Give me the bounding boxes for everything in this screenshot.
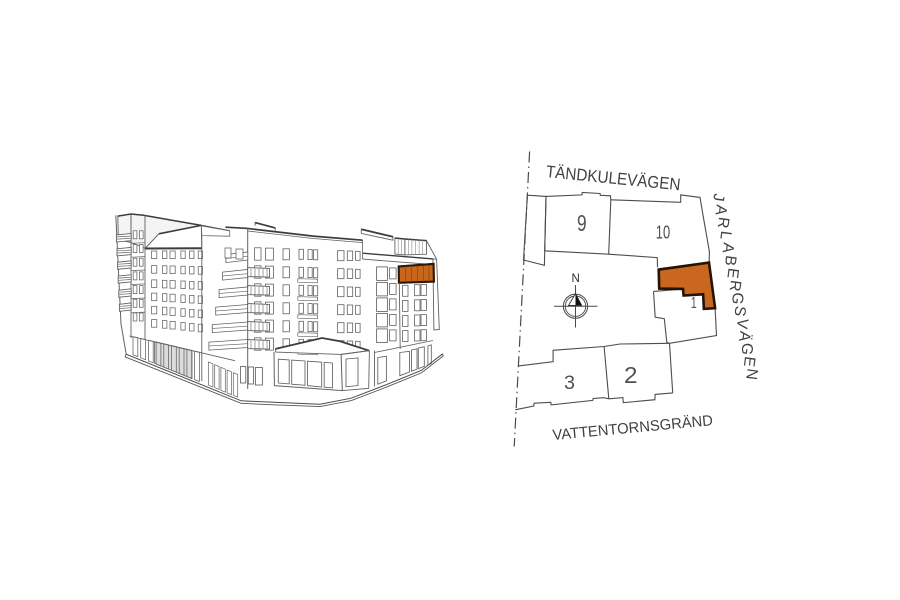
svg-text:S: S <box>730 305 748 317</box>
svg-text:R: R <box>726 279 744 292</box>
svg-text:E: E <box>723 267 741 279</box>
svg-text:R: R <box>714 216 732 229</box>
svg-text:G: G <box>728 291 746 305</box>
svg-text:10: 10 <box>656 221 670 242</box>
svg-text:G: G <box>737 342 755 356</box>
svg-text:1: 1 <box>691 295 697 312</box>
svg-text:N: N <box>742 368 760 381</box>
svg-text:B: B <box>721 254 739 266</box>
svg-text:3: 3 <box>564 372 575 394</box>
svg-text:N: N <box>571 273 579 285</box>
svg-text:9: 9 <box>577 210 587 236</box>
svg-text:2: 2 <box>624 362 638 388</box>
svg-text:E: E <box>740 355 758 367</box>
